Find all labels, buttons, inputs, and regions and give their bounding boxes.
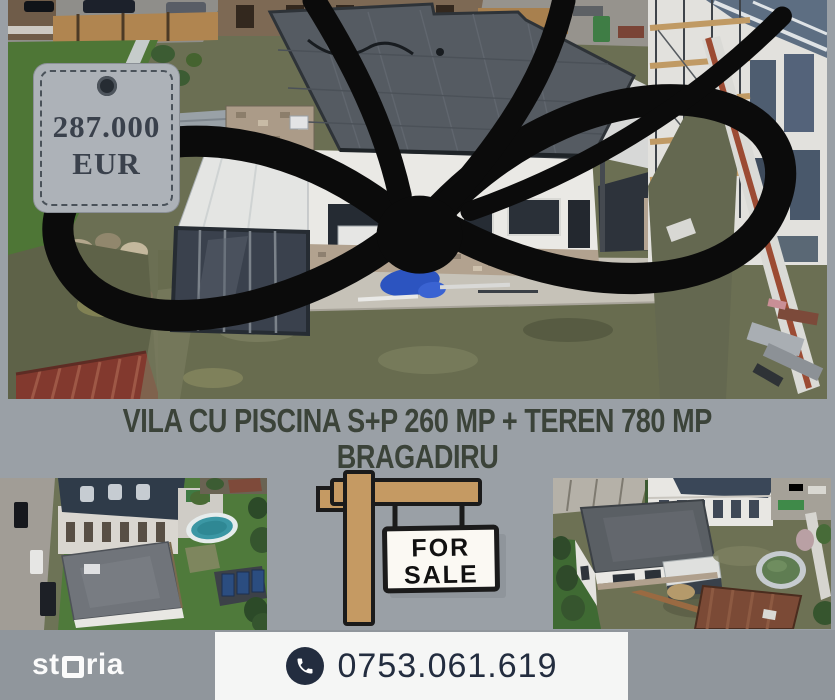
storia-square-o-icon: [62, 656, 84, 678]
ad-canvas: 287.000 EUR VILA CU PISCINA S+P 260 MP +…: [0, 0, 835, 700]
tag-hole: [97, 76, 117, 96]
parked-car: [30, 550, 43, 574]
villa-flat-roof: [62, 542, 184, 628]
photo-left-illustration: [0, 478, 267, 630]
listing-title: VILA CU PISCINA S+P 260 MP + TEREN 780 M…: [0, 399, 835, 478]
pink-tree: [796, 529, 814, 551]
main-photo: 287.000 EUR: [8, 0, 827, 399]
parked-car: [83, 0, 135, 13]
parked-car: [40, 582, 56, 616]
top-right-roofs: [200, 478, 267, 494]
window: [784, 54, 814, 132]
sign-word-2: SALE: [404, 560, 479, 589]
rock-pond: [667, 584, 695, 600]
window: [508, 199, 560, 235]
ac-unit: [290, 116, 308, 129]
photo-bottom-right: [553, 478, 831, 629]
price-tag: 287.000 EUR: [33, 63, 180, 213]
price-value: 287.000: [34, 108, 179, 145]
solar-panel: [237, 572, 249, 594]
title-line-1: VILA CU PISCINA S+P 260 MP + TEREN 780 M…: [123, 403, 712, 439]
parked-car: [166, 2, 206, 14]
phone-panel: 0753.061.619: [215, 632, 628, 700]
price-currency: EUR: [34, 145, 179, 182]
construction-yard: [771, 478, 831, 520]
brand-left: st: [32, 648, 60, 682]
sign-word-1: FOR: [411, 533, 470, 562]
window: [750, 60, 776, 132]
phone-number: 0753.061.619: [338, 647, 558, 686]
price-text: 287.000 EUR: [34, 108, 179, 182]
downpipe: [600, 160, 605, 252]
photo-bottom-left: [0, 478, 267, 630]
window: [463, 202, 493, 246]
parked-car: [24, 1, 54, 12]
portable-toilet: [593, 16, 610, 42]
window: [568, 200, 590, 248]
for-sale-sign: FOR SALE: [262, 468, 553, 630]
solar-panel: [222, 574, 234, 596]
photo-right-illustration: [553, 478, 831, 629]
parked-car: [14, 502, 28, 528]
footer-bar: stria 0753.061.619: [0, 630, 835, 700]
green-cover: [778, 500, 804, 510]
phone-icon: [286, 647, 324, 685]
brand-right: ria: [86, 648, 124, 682]
glass-conservatory: [172, 228, 308, 334]
sign-post: [345, 472, 373, 624]
window: [790, 150, 820, 220]
storia-logo: stria: [32, 646, 124, 684]
